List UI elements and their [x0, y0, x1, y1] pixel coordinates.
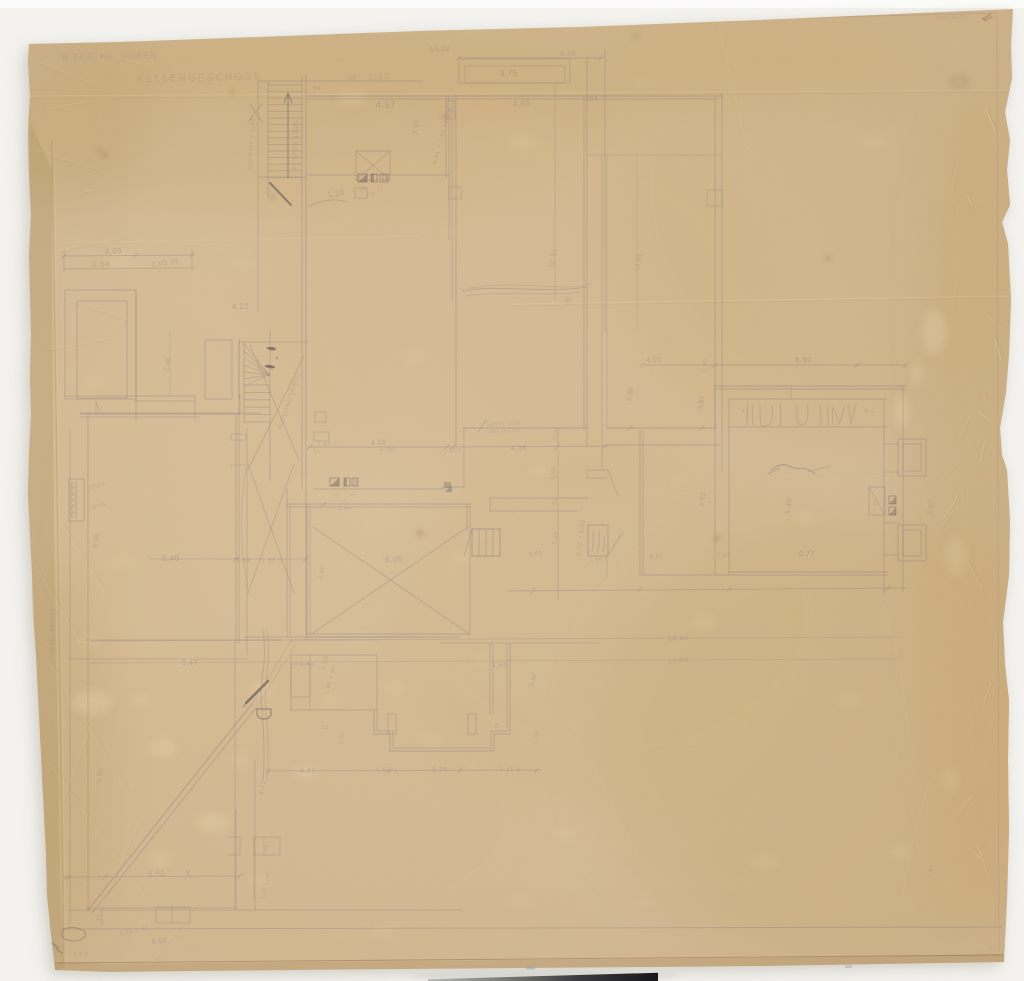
svg-text:13: 13: [340, 497, 347, 503]
svg-text:4,00: 4,00: [105, 246, 122, 256]
svg-text:14,04: 14,04: [668, 657, 689, 665]
svg-text:51: 51: [552, 497, 559, 505]
svg-text:+ 50: + 50: [380, 447, 395, 454]
svg-text:10,02: 10,02: [430, 46, 451, 54]
svg-text:x 1 x: x 1 x: [74, 951, 89, 958]
svg-text:3,76: 3,76: [432, 766, 448, 774]
svg-text:16/1: 16/1: [449, 448, 462, 454]
svg-text:x: x: [873, 500, 877, 507]
svg-text:16: 16: [494, 721, 501, 729]
svg-text:4,22: 4,22: [232, 301, 249, 311]
svg-text:5,52: 5,52: [148, 868, 165, 878]
svg-text:KELLERGESCHOSS: KELLERGESCHOSS: [137, 71, 262, 85]
svg-text:0,77: 0,77: [799, 551, 815, 558]
svg-text:6,50: 6,50: [795, 355, 812, 364]
svg-text:64: 64: [313, 86, 321, 92]
svg-text:13: 13: [359, 186, 367, 193]
svg-text:VENTIL.-TÜR: VENTIL.-TÜR: [487, 420, 520, 428]
svg-text:164: 164: [585, 96, 598, 103]
svg-text:B 27 F. Hs. GUBEN .: B 27 F. Hs. GUBEN .: [62, 50, 165, 62]
svg-text:5,47: 5,47: [182, 660, 198, 667]
svg-text:4,06: 4,06: [371, 439, 387, 447]
svg-text:4,01: 4,01: [646, 357, 662, 364]
svg-text:1938-88-71: 1938-88-71: [936, 15, 967, 22]
svg-text:1,61 1: 1,61 1: [500, 767, 520, 773]
svg-text:64: 64: [264, 844, 271, 852]
svg-text:4,42: 4,42: [300, 767, 316, 775]
svg-text:4,57: 4,57: [376, 99, 396, 110]
svg-text:1,64 +: 1,64 +: [317, 442, 337, 448]
svg-text:2,54: 2,54: [93, 259, 110, 269]
svg-text:16: 16: [64, 875, 71, 881]
svg-text:1,64: 1,64: [338, 506, 352, 512]
svg-text:1,91: 1,91: [717, 553, 731, 559]
svg-text:16: 16: [322, 725, 329, 731]
svg-text:14,64: 14,64: [668, 635, 689, 643]
svg-text:5,40: 5,40: [785, 498, 793, 515]
svg-text:1,64: 1,64: [300, 662, 314, 668]
svg-text:4,56: 4,56: [511, 445, 527, 452]
svg-text:x—: x—: [864, 408, 876, 415]
svg-text:3,20: 3,20: [560, 51, 576, 58]
svg-text:*: *: [742, 408, 746, 417]
svg-text:1,61 1: 1,61 1: [376, 767, 398, 774]
svg-text:16: 16: [96, 913, 103, 921]
svg-text:2,92: 2,92: [413, 119, 421, 135]
svg-text:13: 13: [332, 491, 339, 497]
svg-text:KANALISATION: KANALISATION: [50, 608, 56, 655]
svg-text:1,64: 1,64: [492, 662, 507, 669]
svg-text:50: 50: [313, 449, 320, 455]
svg-text:1 64 1: 1 64 1: [590, 557, 608, 563]
svg-text:M · 1:50: M · 1:50: [348, 71, 391, 82]
svg-text:11: 11: [376, 186, 383, 193]
svg-text:5,40: 5,40: [162, 554, 180, 563]
svg-text:1 64 1: 1 64 1: [262, 558, 282, 564]
svg-text:13: 13: [367, 191, 375, 198]
svg-text:3,75: 3,75: [500, 69, 518, 78]
svg-text:4,05: 4,05: [513, 99, 531, 108]
svg-text:11: 11: [349, 491, 356, 497]
svg-text:6,05: 6,05: [385, 555, 403, 564]
